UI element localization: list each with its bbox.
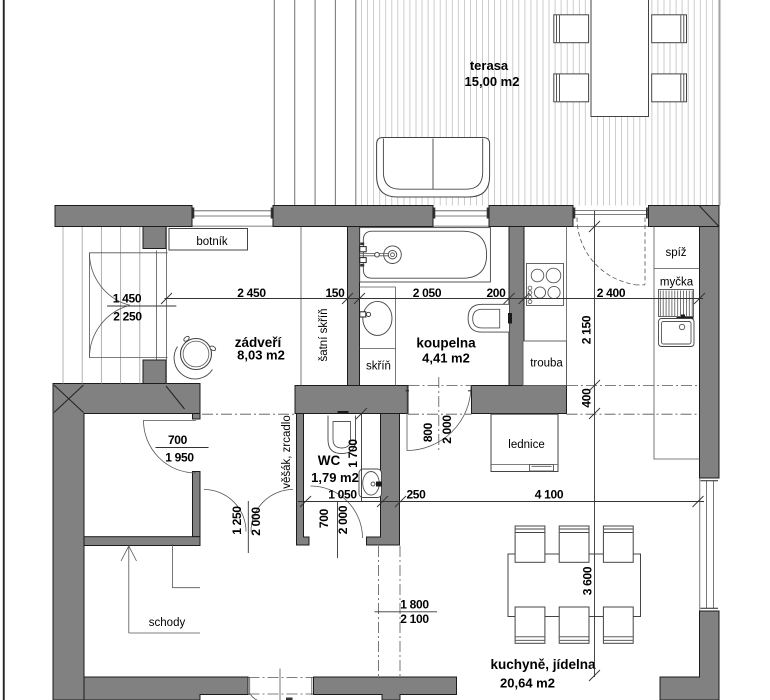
svg-text:1 800: 1 800 (400, 598, 429, 612)
svg-text:WC: WC (318, 453, 341, 468)
svg-text:700: 700 (317, 508, 331, 528)
svg-text:šatní skříň: šatní skříň (318, 308, 330, 361)
svg-text:2 250: 2 250 (113, 310, 142, 324)
svg-text:8,03 m2: 8,03 m2 (237, 348, 285, 363)
svg-text:2 150: 2 150 (580, 315, 594, 344)
svg-text:2 050: 2 050 (413, 286, 442, 300)
svg-text:2 000: 2 000 (249, 507, 263, 536)
svg-text:800: 800 (421, 422, 435, 442)
svg-text:2 450: 2 450 (237, 286, 266, 300)
svg-text:2 000: 2 000 (336, 505, 350, 534)
svg-text:2 100: 2 100 (400, 612, 429, 626)
svg-text:1 250: 1 250 (230, 506, 244, 535)
svg-text:1 700: 1 700 (346, 439, 360, 468)
svg-text:1 950: 1 950 (165, 451, 194, 465)
svg-text:1,79 m2: 1,79 m2 (311, 470, 359, 485)
svg-text:200: 200 (486, 286, 506, 300)
svg-text:terasa: terasa (470, 58, 509, 73)
svg-text:lednice: lednice (508, 439, 544, 451)
svg-text:kuchyně, jídelna: kuchyně, jídelna (490, 657, 596, 672)
svg-text:schody: schody (149, 617, 186, 629)
svg-text:400: 400 (580, 388, 594, 408)
svg-text:skříň: skříň (366, 361, 391, 373)
svg-text:3 600: 3 600 (581, 566, 595, 595)
svg-text:250: 250 (406, 488, 426, 502)
svg-text:20,64 m2: 20,64 m2 (500, 676, 555, 691)
svg-text:2 000: 2 000 (440, 415, 454, 444)
svg-text:2 400: 2 400 (597, 286, 626, 300)
svg-text:150: 150 (325, 286, 345, 300)
svg-text:4 100: 4 100 (535, 488, 564, 502)
svg-text:koupelna: koupelna (416, 336, 476, 351)
svg-text:1 050: 1 050 (328, 488, 357, 502)
svg-text:1 450: 1 450 (113, 292, 142, 306)
svg-text:700: 700 (168, 433, 188, 447)
svg-text:trouba: trouba (530, 358, 563, 370)
svg-text:4,41 m2: 4,41 m2 (422, 351, 470, 366)
svg-text:15,00 m2: 15,00 m2 (465, 74, 520, 89)
svg-text:myčka: myčka (660, 277, 694, 289)
svg-text:spíž: spíž (665, 247, 686, 259)
svg-text:botník: botník (196, 236, 228, 248)
svg-text:věšák, zrcadlo: věšák, zrcadlo (281, 415, 293, 489)
